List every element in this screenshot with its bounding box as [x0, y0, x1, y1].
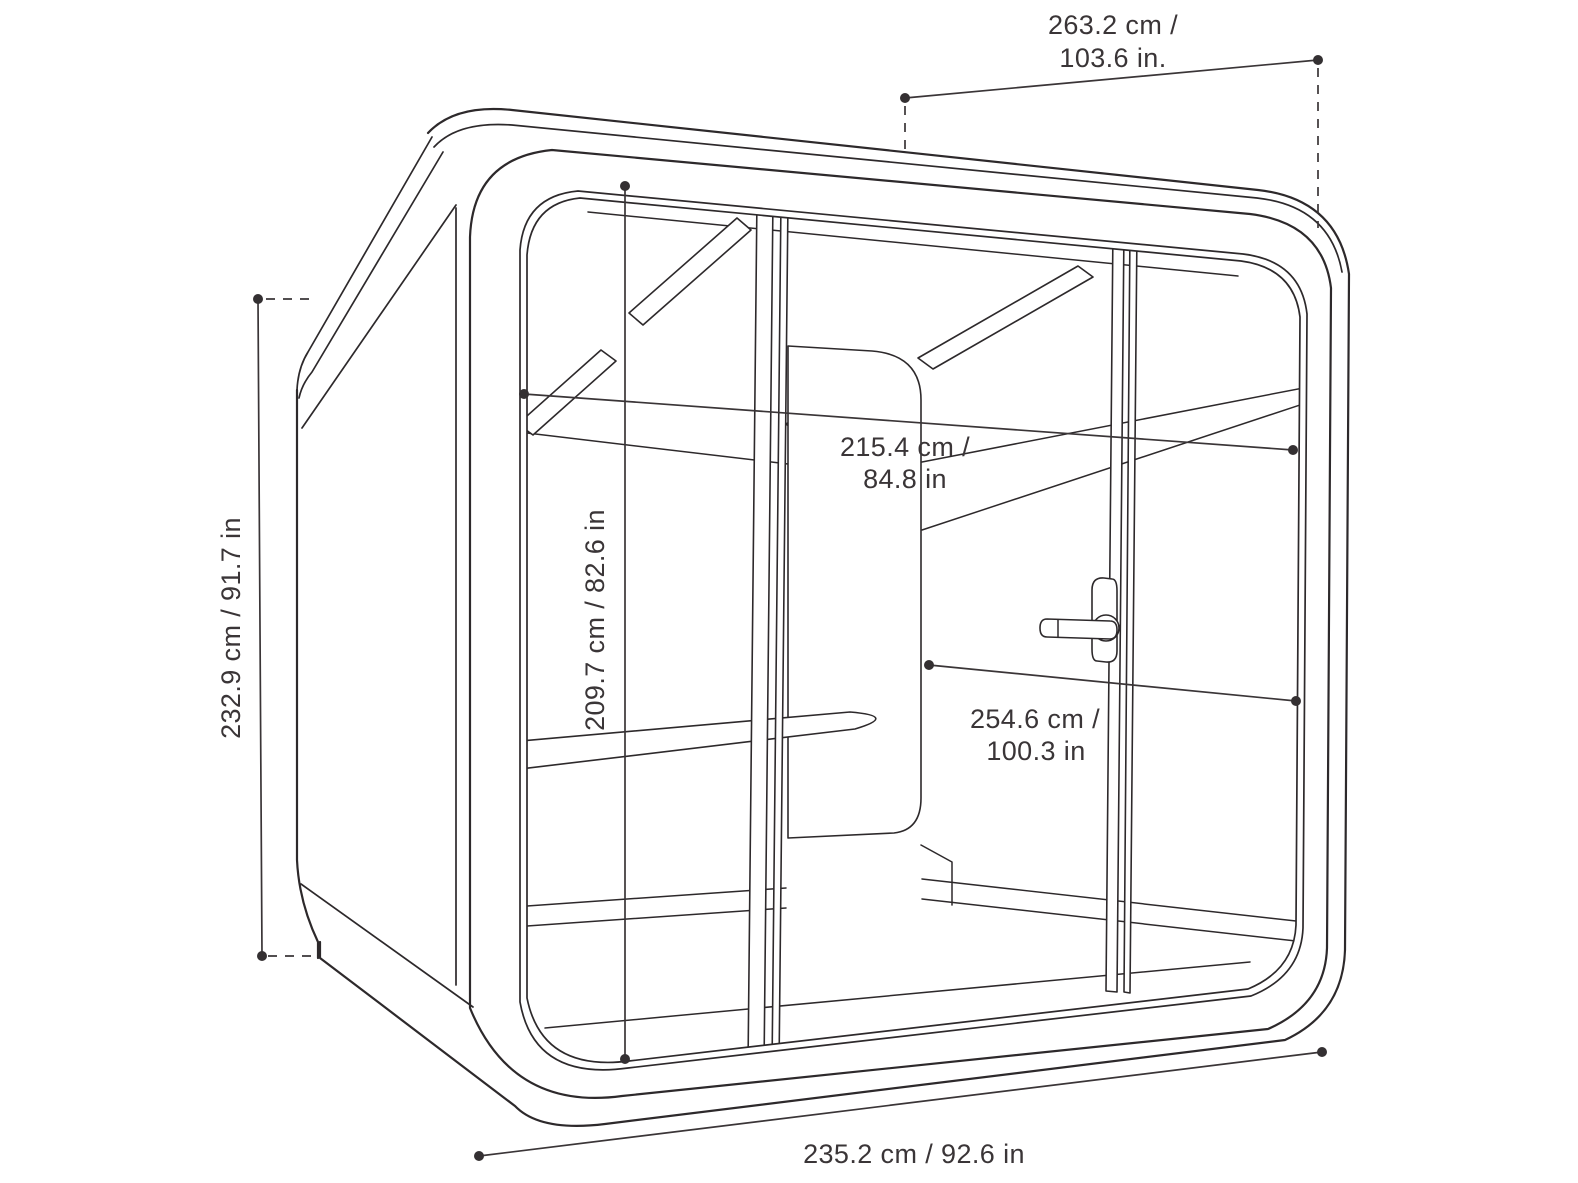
dim-endpoint-dot: [924, 660, 934, 670]
dim-label: 100.3 in: [986, 736, 1085, 766]
dim-endpoint-dot: [1317, 1047, 1327, 1057]
dim-label: 215.4 cm /: [840, 432, 970, 462]
pod-dimension-diagram: 263.2 cm / 103.6 in. 232.9 cm / 91.7 in …: [0, 0, 1578, 1183]
dim-endpoint-dot: [1288, 445, 1298, 455]
diagram-canvas: 263.2 cm / 103.6 in. 232.9 cm / 91.7 in …: [0, 0, 1578, 1183]
dim-endpoint-dot: [474, 1151, 484, 1161]
handle-lever: [1040, 619, 1117, 639]
dim-endpoint-dot: [519, 389, 529, 399]
dim-endpoint-dot: [253, 294, 263, 304]
dim-label: 209.7 cm / 82.6 in: [580, 509, 610, 731]
dim-label: 254.6 cm /: [970, 704, 1100, 734]
dim-label: 232.9 cm / 91.7 in: [216, 517, 246, 739]
dim-endpoint-dot: [620, 1054, 630, 1064]
dim-label: 84.8 in: [863, 464, 947, 494]
dim-endpoint-dot: [1291, 696, 1301, 706]
dim-endpoint-dot: [1313, 55, 1323, 65]
dim-label: 235.2 cm / 92.6 in: [803, 1139, 1025, 1169]
dim-endpoint-dot: [620, 181, 630, 191]
dim-endpoint-dot: [900, 93, 910, 103]
dim-label: 263.2 cm /: [1048, 10, 1178, 40]
dim-endpoint-dot: [257, 951, 267, 961]
dim-label: 103.6 in.: [1059, 43, 1166, 73]
